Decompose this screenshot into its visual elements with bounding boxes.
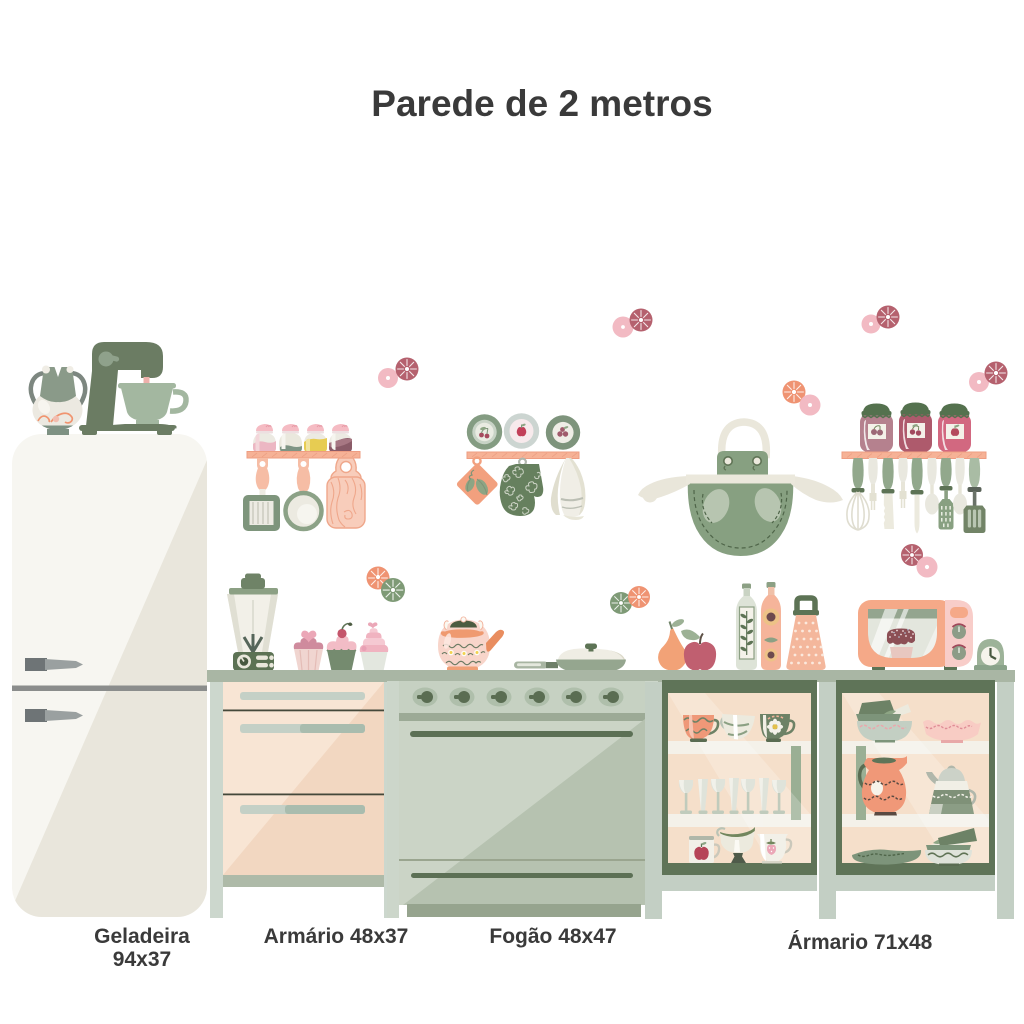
svg-text:Fogão 48x47: Fogão 48x47 [489, 925, 616, 948]
svg-text:Geladeira: Geladeira [94, 925, 190, 948]
svg-text:Ármario 71x48: Ármario 71x48 [788, 931, 933, 954]
svg-text:Parede de 2 metros: Parede de 2 metros [371, 83, 712, 124]
svg-text:Armário 48x37: Armário 48x37 [264, 925, 409, 948]
svg-text:94x37: 94x37 [113, 948, 171, 971]
